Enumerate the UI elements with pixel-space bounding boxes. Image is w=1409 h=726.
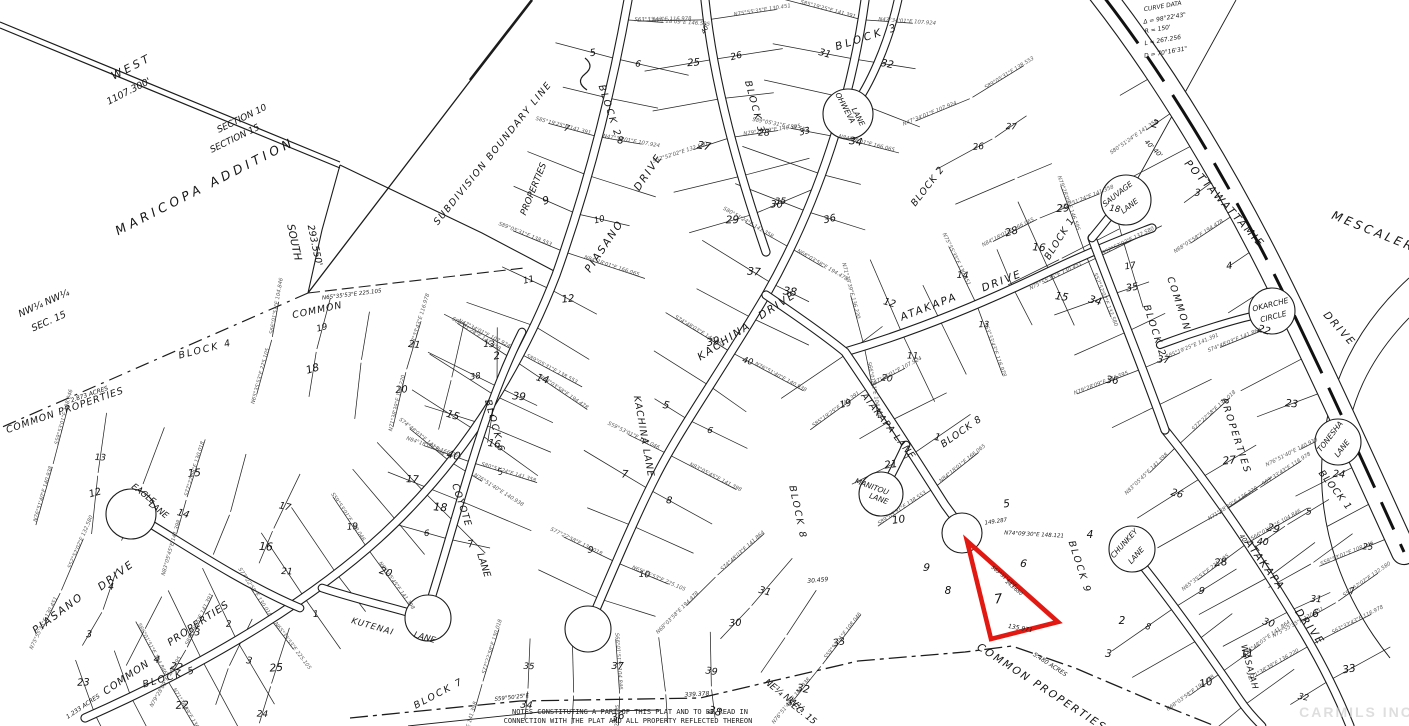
lot-number: 3 (86, 629, 92, 640)
lot-number: 13 (95, 453, 107, 463)
plat-notes-line2: CONNECTION WITH THE PLAT AND ALL PROPERT… (504, 717, 753, 725)
lot-number: 38 (469, 371, 482, 383)
plat-map-scan: N79°28'09"E 146.595567S85°19'25"E 141.39… (0, 0, 1409, 726)
lot-number: 23 (1284, 398, 1298, 410)
lot-number: 2 (1119, 615, 1126, 627)
lot-number: 16 (259, 540, 274, 554)
lot-number: 17 (1124, 261, 1137, 273)
lot-number: 25 (687, 57, 701, 69)
lot-number: 24 (1333, 469, 1346, 481)
bearing-annotation: S63°33'43"E 116.978 (634, 16, 692, 23)
cul-de-sac-circle (565, 606, 611, 652)
lot-number: 4 (1087, 529, 1094, 541)
lot-number: 10 (891, 513, 906, 527)
lot-number: 32 (1297, 692, 1310, 704)
lot-number: 24 (256, 710, 268, 720)
lot-number: 23 (77, 677, 90, 688)
dim-south-boundary: 339.378 (684, 690, 709, 698)
lot-number: 8 (945, 585, 952, 597)
plat-notes-line1: NOTES CONSTITUTING A PART OF THIS PLAT A… (512, 708, 748, 716)
lot-number: 21 (281, 567, 293, 577)
lot-number: 7 (621, 467, 629, 481)
lot-number: 21 (884, 458, 899, 472)
lot-number: 3 (1195, 188, 1201, 199)
lot-number: 37 (747, 266, 762, 279)
lot-number: 17 (406, 474, 420, 486)
plat-map-canvas: N79°28'09"E 146.595567S85°19'25"E 141.39… (0, 0, 1409, 726)
lot-number: 18 (433, 500, 448, 514)
scan-watermark: CARMILS INC (1299, 704, 1409, 720)
lot-number: 15 (1054, 290, 1069, 304)
lot-number: 35 (775, 196, 787, 207)
lot-number: 39 (705, 665, 719, 678)
lot-number: 33 (1342, 662, 1357, 676)
lot-number: 12 (561, 293, 575, 305)
lot-number: 1 (313, 610, 319, 620)
lot-number: 39 (512, 390, 527, 403)
lot-number: 2 (226, 620, 233, 630)
lot-number: 26 (972, 142, 984, 153)
lot-number: 27 (1006, 122, 1018, 133)
lot-number: 25 (269, 662, 284, 675)
lot-number: 6 (424, 529, 430, 539)
lot-number: 27 (1222, 453, 1237, 467)
lot-number: 35 (1125, 281, 1139, 294)
lot-number: 35 (523, 662, 535, 672)
lot-number: 5 (1306, 507, 1313, 517)
lot-number: 8 (666, 495, 673, 507)
lot-number: 31 (1310, 595, 1322, 606)
lot-number: 30 (729, 618, 742, 630)
